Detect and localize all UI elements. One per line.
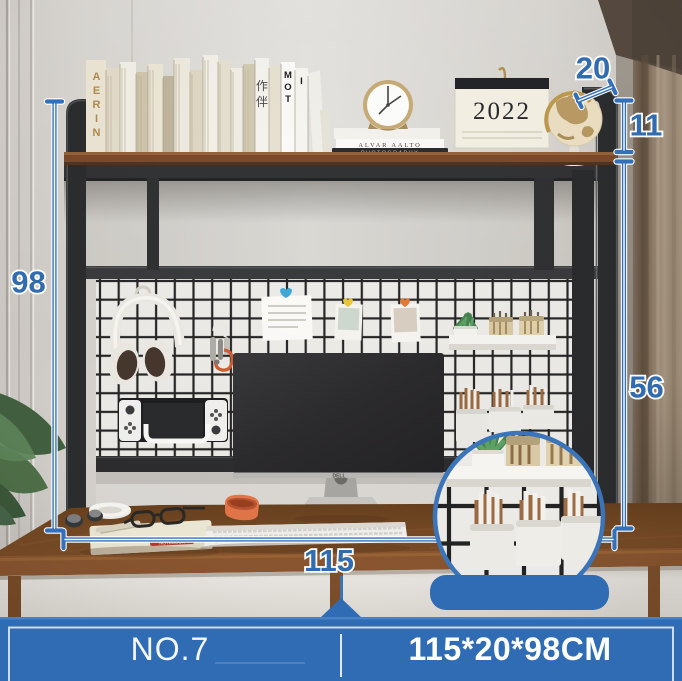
svg-text:98: 98 bbox=[11, 265, 45, 300]
svg-text:56: 56 bbox=[629, 370, 663, 405]
svg-text:115: 115 bbox=[304, 543, 354, 578]
svg-text:NO.7: NO.7 bbox=[131, 631, 210, 667]
svg-text:11: 11 bbox=[630, 108, 663, 143]
svg-text:20: 20 bbox=[576, 51, 610, 86]
svg-text:115*20*98CM: 115*20*98CM bbox=[409, 631, 612, 667]
